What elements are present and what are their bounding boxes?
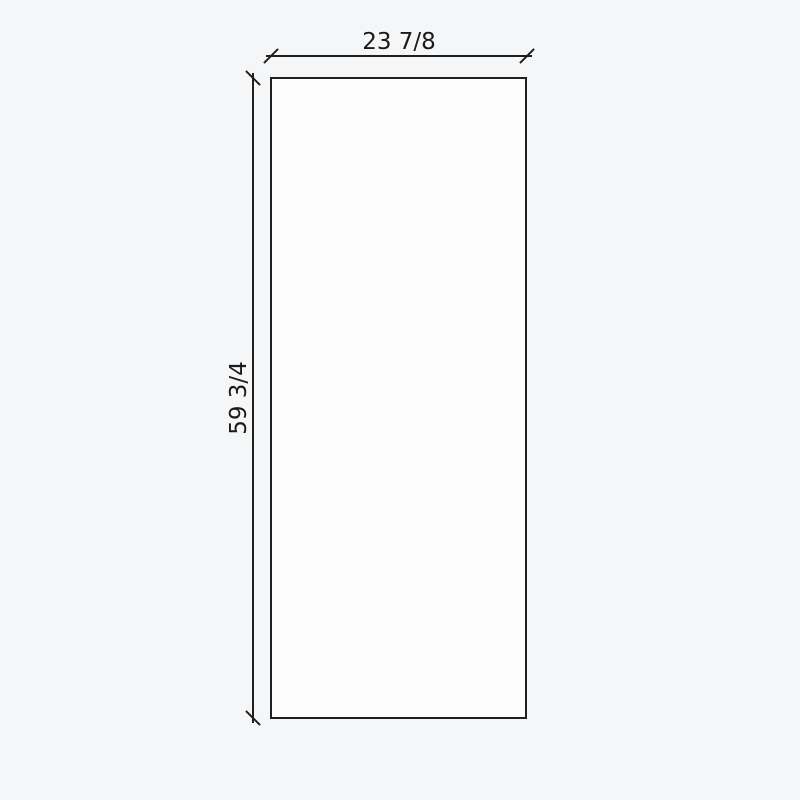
height-dimension-label: 59 3/4 [227, 361, 251, 435]
dimension-drawing-canvas: 23 7/8 59 3/4 [0, 0, 800, 800]
height-dimension-line [252, 73, 254, 723]
width-dimension-line [266, 55, 532, 57]
width-dimension-label: 23 7/8 [319, 30, 479, 54]
panel-outline [270, 77, 527, 719]
